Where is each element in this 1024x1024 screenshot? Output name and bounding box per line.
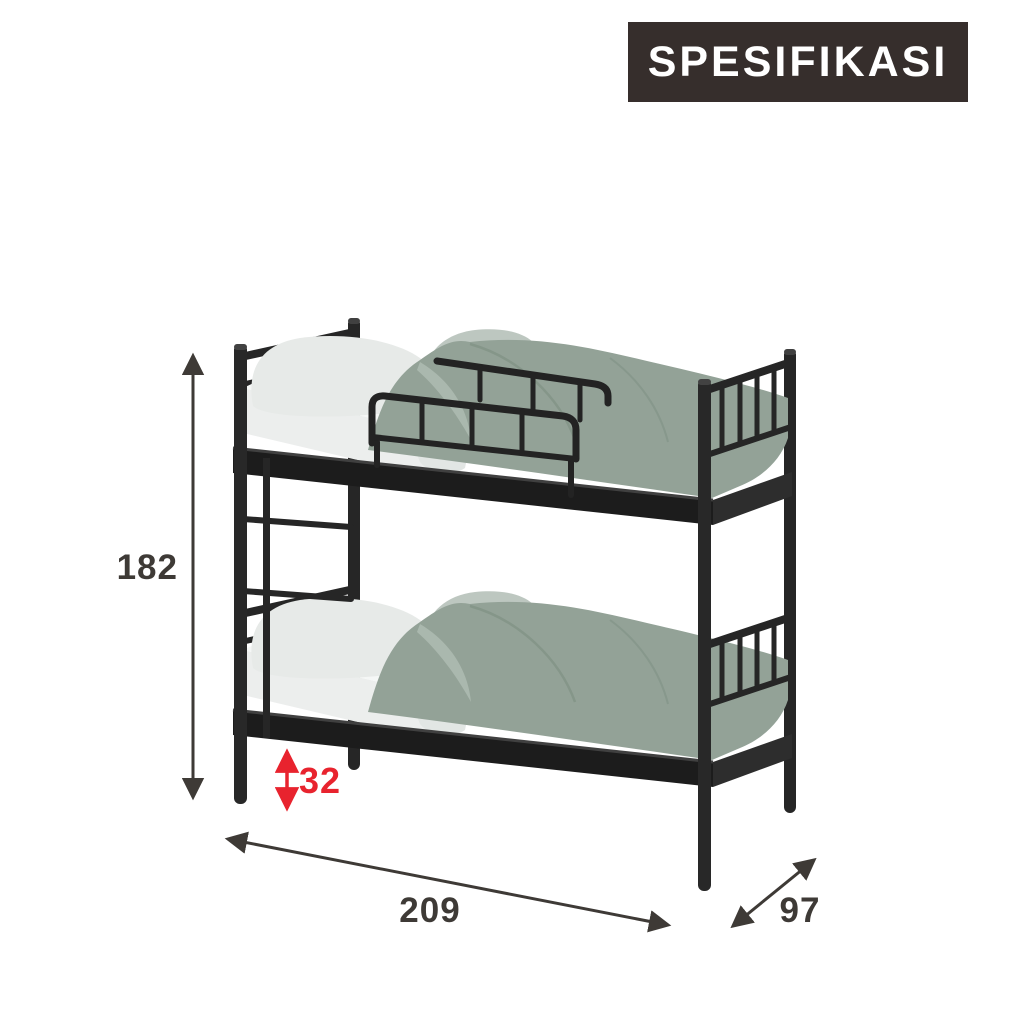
bunk-bed-render <box>233 318 796 891</box>
post-cap <box>348 318 360 324</box>
post-cap <box>234 344 247 350</box>
clearance-value: 32 <box>299 760 341 801</box>
dimension-height: 182 <box>117 356 193 797</box>
height-value: 182 <box>117 548 178 587</box>
dimension-clearance: 32 <box>287 752 341 808</box>
front-right-post <box>698 379 711 891</box>
length-value: 209 <box>399 891 460 930</box>
spec-title-badge: SPESIFIKASI <box>628 22 968 102</box>
ladder-rung <box>243 519 351 527</box>
post-cap <box>784 349 796 355</box>
depth-value: 97 <box>780 891 821 930</box>
bunk-bed-diagram: 182 32 209 97 <box>0 0 1024 1024</box>
front-left-post <box>234 344 247 804</box>
spec-sheet: 182 32 209 97 SPESIFIKASI <box>0 0 1024 1024</box>
ladder-side-rail <box>263 458 270 738</box>
dimension-depth: 97 <box>733 860 820 930</box>
dimension-length: 209 <box>228 839 668 930</box>
post-cap <box>698 379 711 385</box>
spec-title-label: SPESIFIKASI <box>648 38 949 87</box>
